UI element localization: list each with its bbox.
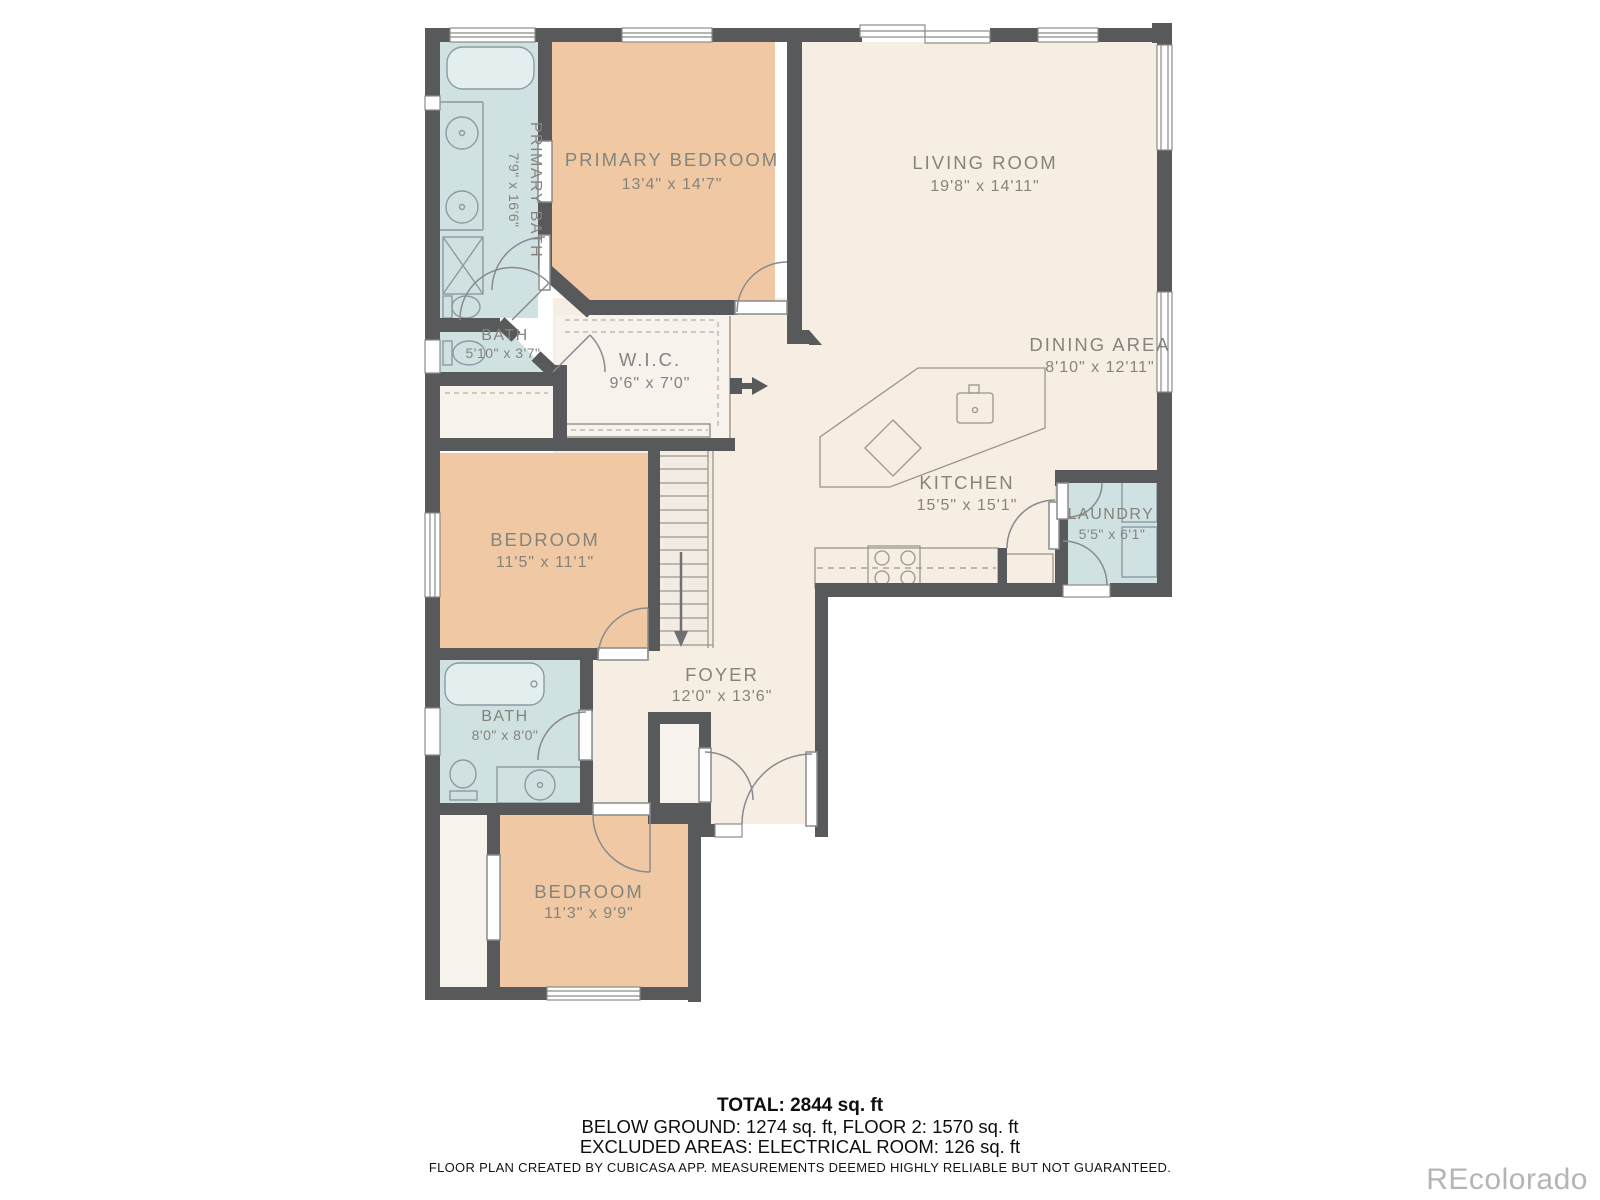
floor-plan-page: PRIMARY BATH 7'9" x 16'6" PRIMARY BEDROO… [0,0,1600,1200]
closet-foyer [658,722,701,814]
label-bedroom-lower: BEDROOM [534,881,644,902]
wall-wic-left [553,365,567,443]
wall-primary-bedroom-right [787,42,802,315]
wall-closet-right-1 [487,815,500,855]
label-living-room: LIVING ROOM [912,152,1057,173]
door-bedroom-lower-threshold [593,803,650,815]
disclaimer-text: FLOOR PLAN CREATED BY CUBICASA APP. MEAS… [0,1160,1600,1175]
label-bath-upper: BATH [481,327,528,344]
window-left-0 [425,96,440,110]
wall-bottom-1 [425,987,547,1000]
dims-bath-upper: 5'10" x 3'7" [466,345,541,361]
dims-wic: 9'6" x 7'0" [610,375,691,392]
label-primary-bedroom: PRIMARY BEDROOM [565,149,779,170]
label-wic: W.I.C. [619,349,681,370]
dims-laundry: 5'5" x 6'1" [1079,526,1146,542]
wall-right-2 [1157,150,1172,292]
wall-bedroom-mid-right [648,451,660,651]
label-bath-lower: BATH [481,708,528,725]
window-foyer-sidelite [715,824,742,837]
wall-kitchen-stub [998,548,1007,597]
wall-top-1 [425,28,450,42]
wall-laundry-top [1055,470,1157,483]
summary-excluded: EXCLUDED AREAS: ELECTRICAL ROOM: 126 sq.… [0,1137,1600,1158]
window-left-3 [425,708,440,755]
wall-right-3 [1157,392,1172,597]
bathtub-primary [447,47,534,89]
door-bedroom-mid-threshold [598,648,648,660]
door-leaf-foyer-closet [699,748,711,802]
window-right-1 [1157,45,1172,150]
label-kitchen: KITCHEN [919,472,1014,493]
dims-dining-area: 8'10" x 12'11" [1045,359,1154,376]
label-foyer: FOYER [685,664,759,685]
dims-primary-bath: 7'9" x 16'6" [506,153,522,228]
wall-bottom-2 [640,987,701,1000]
door-leaf-laundry [1057,483,1068,519]
closet-linen [440,386,553,441]
label-primary-bath: PRIMARY BATH [527,122,544,258]
wall-bedroom-lower-right [688,810,701,1002]
wall-foyer-closet-right-1 [699,712,711,748]
watermark: REcolorado [1426,1163,1588,1197]
dims-bedroom-mid: 11'5" x 11'1" [496,554,594,571]
wall-laundry-bottom [1110,583,1172,597]
door-primary-bedroom-threshold [735,301,787,314]
dims-bath-lower: 8'0" x 8'0" [472,727,539,743]
window-bottom-1 [547,987,640,1000]
wall-top-4 [990,28,1038,42]
closet-bedroom-lower [440,815,487,987]
dims-foyer: 12'0" x 13'6" [672,688,773,705]
label-dining-area: DINING AREA [1029,334,1170,355]
dims-primary-bedroom: 13'4" x 14'7" [622,176,723,193]
door-leaf-bath-lower [579,710,592,760]
dims-kitchen: 15'5" x 15'1" [917,497,1018,514]
wall-primary-bedroom-bottom [585,300,737,315]
laundry-exterior-threshold [1063,585,1110,597]
window-left-1 [425,340,440,373]
room-bedroom-mid [440,453,648,650]
label-laundry: LAUNDRY [1068,506,1155,523]
wall-top-3 [712,28,862,42]
wall-wic-bottom [438,438,735,451]
dims-bedroom-lower: 11'3" x 9'9" [544,905,634,922]
summary-floors: BELOW GROUND: 1274 sq. ft, FLOOR 2: 1570… [0,1117,1600,1138]
window-top-2 [622,28,712,42]
door-leaf-entry [806,752,817,826]
window-top-1 [450,28,535,42]
bathtub-lower [445,663,544,705]
wall-bath-lower-bottom-1 [440,803,593,815]
wall-kitchen-bottom [815,583,1063,597]
wall-closet-right-2 [487,940,500,987]
wall-bath-lower-right-1 [580,660,593,712]
window-top-5 [1038,28,1098,42]
wall-top-2 [535,28,622,42]
floor-plan-drawing: PRIMARY BATH 7'9" x 16'6" PRIMARY BEDROO… [0,0,1600,1200]
wall-bath-lower-right-2 [580,760,593,805]
dims-living-room: 19'8" x 14'11" [930,178,1039,195]
room-stairwell [653,443,713,648]
wall-stub-2 [787,330,809,344]
door-closet-opening [487,855,500,940]
label-bedroom-mid: BEDROOM [490,529,600,550]
summary-total: TOTAL: 2844 sq. ft [0,1096,1600,1117]
wall-bath-upper-bottom [425,372,553,386]
wall-bedroom-mid-bottom [440,648,598,660]
area-summary: TOTAL: 2844 sq. ft BELOW GROUND: 1274 sq… [0,1096,1600,1158]
window-left-2 [425,513,440,597]
